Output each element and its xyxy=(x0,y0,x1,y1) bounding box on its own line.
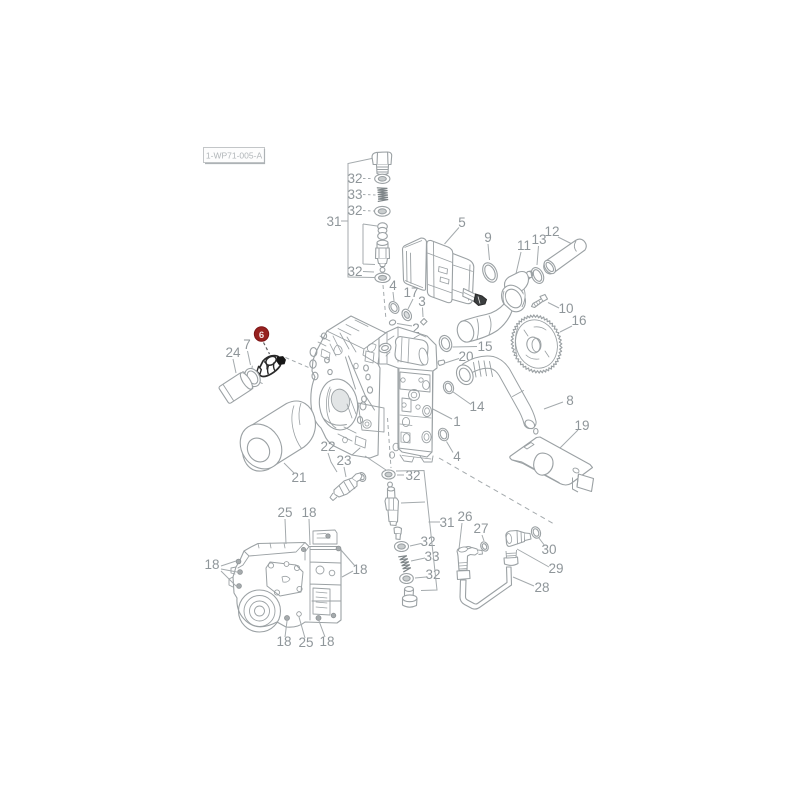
svg-text:17: 17 xyxy=(403,285,418,300)
svg-text:33: 33 xyxy=(347,187,362,202)
svg-text:3: 3 xyxy=(418,294,426,309)
svg-text:6: 6 xyxy=(259,330,264,341)
svg-text:5: 5 xyxy=(458,215,466,230)
svg-text:32: 32 xyxy=(347,264,362,279)
svg-text:27: 27 xyxy=(473,521,488,536)
svg-text:1-WP71-005-A: 1-WP71-005-A xyxy=(206,151,263,161)
svg-text:16: 16 xyxy=(571,313,586,328)
svg-text:25: 25 xyxy=(298,635,313,650)
svg-text:18: 18 xyxy=(352,562,367,577)
svg-text:32: 32 xyxy=(425,567,440,582)
svg-text:25: 25 xyxy=(277,505,292,520)
svg-text:32: 32 xyxy=(347,203,362,218)
svg-text:22: 22 xyxy=(320,439,335,454)
svg-text:8: 8 xyxy=(566,393,574,408)
svg-text:32: 32 xyxy=(420,534,435,549)
svg-text:29: 29 xyxy=(548,561,563,576)
svg-text:4: 4 xyxy=(453,449,461,464)
svg-text:18: 18 xyxy=(204,557,219,572)
svg-text:18: 18 xyxy=(319,634,334,649)
svg-text:14: 14 xyxy=(469,399,485,414)
svg-text:32: 32 xyxy=(347,171,362,186)
svg-text:4: 4 xyxy=(389,278,397,293)
svg-text:7: 7 xyxy=(243,337,251,352)
svg-text:24: 24 xyxy=(225,345,241,360)
svg-text:31: 31 xyxy=(326,214,341,229)
svg-text:15: 15 xyxy=(477,339,492,354)
svg-text:18: 18 xyxy=(276,634,291,649)
svg-text:11: 11 xyxy=(517,238,531,253)
svg-text:12: 12 xyxy=(544,224,559,239)
svg-text:9: 9 xyxy=(484,230,492,245)
svg-text:28: 28 xyxy=(534,580,549,595)
svg-text:18: 18 xyxy=(301,505,316,520)
svg-text:33: 33 xyxy=(424,549,439,564)
svg-text:1: 1 xyxy=(453,414,461,429)
svg-text:26: 26 xyxy=(457,509,472,524)
svg-text:23: 23 xyxy=(336,453,351,468)
svg-text:31: 31 xyxy=(439,515,454,530)
